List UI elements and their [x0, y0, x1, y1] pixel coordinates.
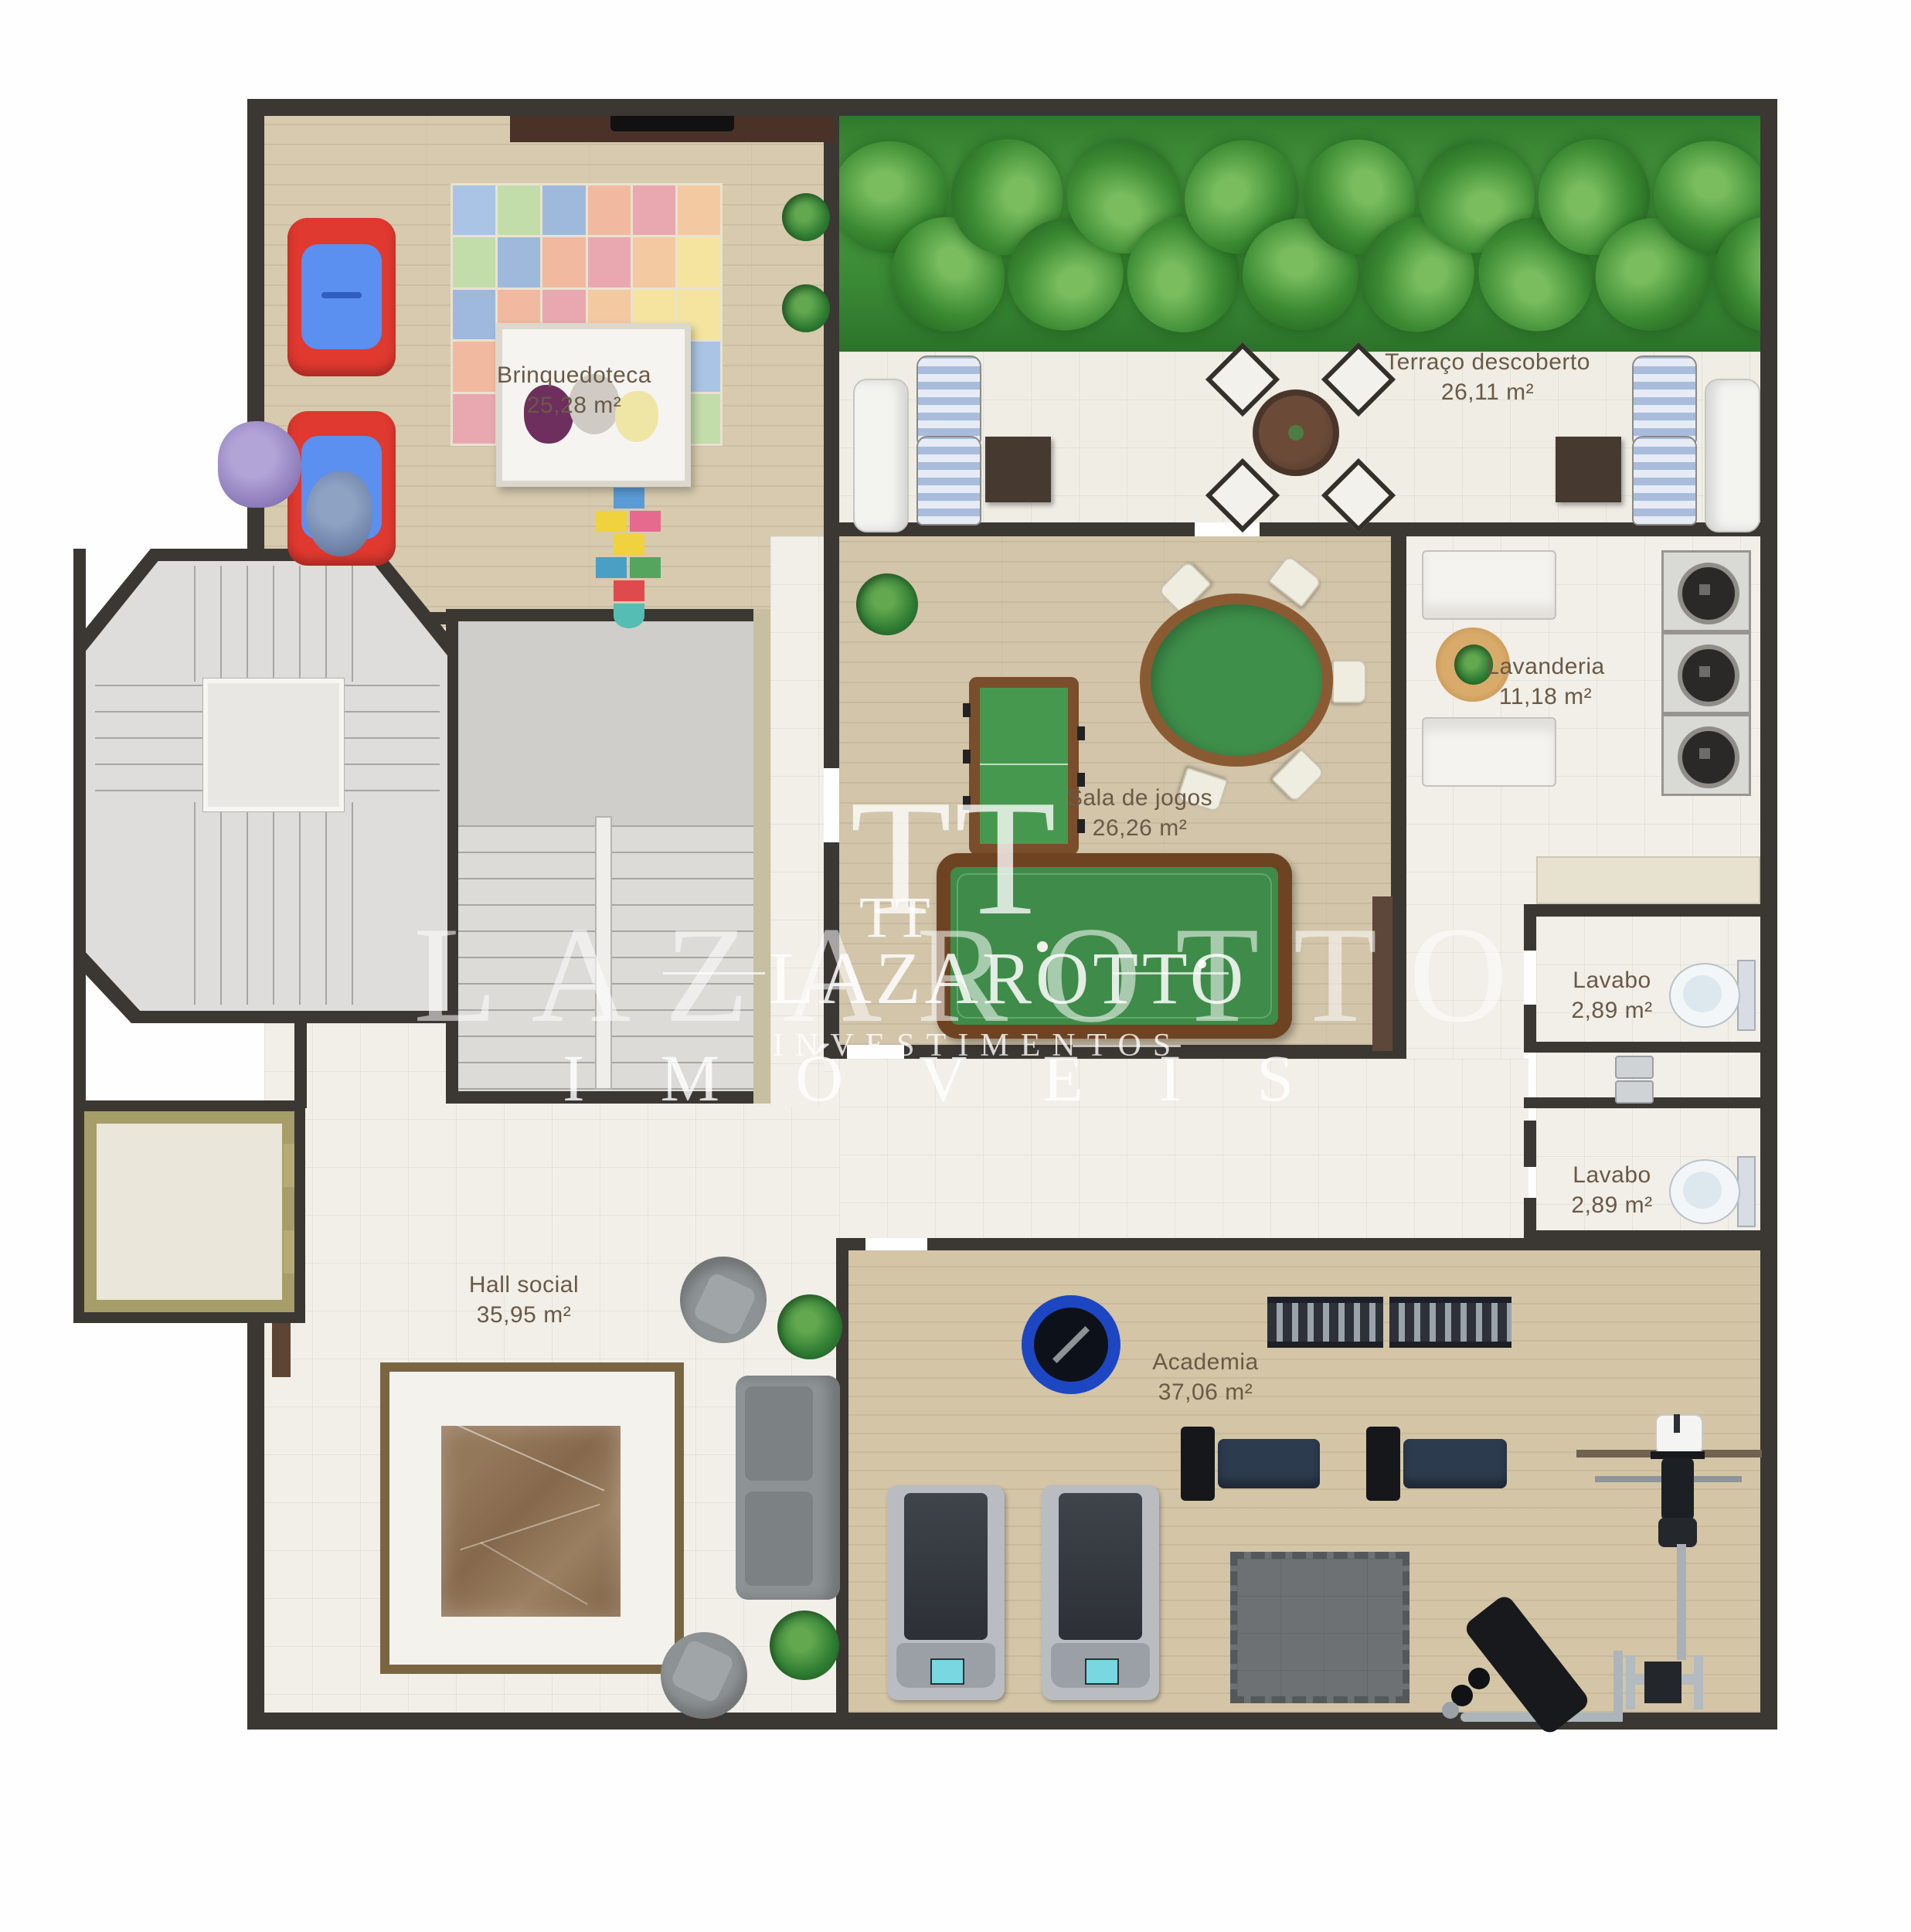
washer-drum	[1678, 726, 1739, 788]
kids-sofa-red	[287, 218, 396, 376]
room-area: 11,18 m²	[1486, 682, 1604, 712]
stairwell-octagon	[73, 549, 460, 1023]
foosball-knob	[963, 796, 971, 810]
play-mat-tile	[453, 237, 495, 287]
toilet-bowl	[1669, 1159, 1740, 1224]
room-label-lavanderia: Lavanderia 11,18 m²	[1486, 651, 1604, 712]
play-mat-tile	[453, 185, 495, 235]
sofa-cushion	[745, 1386, 813, 1481]
hopscotch-tile	[614, 604, 644, 628]
pool-table-inner-line	[957, 873, 1272, 1019]
sun-lounger	[916, 355, 981, 445]
play-mat-tile	[498, 237, 540, 287]
toilet-icon	[1669, 1153, 1756, 1227]
laundry-table	[1422, 550, 1556, 620]
machine-seatback	[1661, 1458, 1694, 1521]
sink-icon	[1615, 1056, 1654, 1079]
toilet-bowl	[1669, 963, 1740, 1028]
round-dining-table	[1253, 389, 1339, 476]
plant-icon	[782, 284, 830, 332]
elevator-door	[284, 1144, 294, 1187]
foosball-knob	[963, 703, 971, 717]
stair-landing	[203, 679, 344, 811]
hedge-plants	[839, 116, 1760, 352]
coffee-table-square	[1556, 437, 1621, 502]
wall	[824, 842, 839, 1053]
bench-foot	[1442, 1702, 1459, 1719]
wall	[847, 1238, 865, 1250]
wall	[247, 99, 1777, 116]
room-label-academia: Academia 37,06 m²	[1152, 1347, 1258, 1407]
kids-sofa-seam	[321, 292, 362, 298]
wall	[904, 1045, 1406, 1059]
room-name: Brinquedoteca	[497, 360, 651, 390]
plant-icon	[856, 573, 918, 635]
laundry-table	[1422, 717, 1556, 787]
treadmill-screen	[1085, 1658, 1119, 1685]
room-name: Lavanderia	[1486, 651, 1604, 682]
washer-drum	[1678, 645, 1739, 706]
hopscotch-tile	[596, 511, 627, 532]
room-label-brinquedoteca: Brinquedoteca 25,28 m²	[497, 360, 651, 420]
elevator-door	[284, 1230, 294, 1274]
machine-seat	[1658, 1518, 1697, 1547]
sun-lounger	[1632, 355, 1697, 445]
room-name: Hall social	[469, 1270, 579, 1300]
exercise-station-blue	[1022, 1295, 1120, 1394]
play-mat-tile	[588, 185, 631, 235]
room-area: 26,26 m²	[1067, 813, 1212, 843]
sun-lounger	[1632, 436, 1697, 526]
coffee-table-square	[985, 437, 1051, 502]
wall	[1391, 522, 1406, 1059]
wall	[927, 1238, 1760, 1250]
wall	[1260, 522, 1406, 536]
stairs	[95, 685, 203, 801]
laundry-counter	[1536, 856, 1760, 904]
hall-sofa	[736, 1376, 840, 1600]
washing-machine-icon	[1661, 632, 1751, 714]
toilet-icon	[1669, 957, 1756, 1031]
foosball-knob	[1077, 726, 1085, 740]
wall	[1524, 904, 1760, 917]
room-label-terraco: Terraço descoberto 26,11 m²	[1385, 347, 1590, 407]
armchair-cushion	[669, 1638, 735, 1704]
wall	[446, 1091, 770, 1104]
hopscotch-tile	[630, 557, 661, 578]
treadmill	[1042, 1485, 1159, 1700]
card-chair	[1332, 660, 1366, 703]
sink-icon	[1615, 1080, 1654, 1104]
stairs	[194, 566, 372, 682]
hopscotch-tile	[614, 534, 644, 555]
room-area: 37,06 m²	[1152, 1377, 1258, 1407]
play-mat-tile	[453, 290, 495, 339]
foosball-table	[969, 677, 1079, 855]
washing-machine-icon	[1661, 714, 1751, 796]
plant-icon	[777, 1294, 842, 1359]
foosball-knob	[963, 750, 971, 764]
station-glyph	[1052, 1326, 1090, 1363]
bean-bag-purple	[218, 421, 301, 508]
pool-ball	[1037, 941, 1048, 952]
wall	[1524, 1005, 1536, 1053]
play-mat-tile	[498, 185, 540, 235]
wall	[824, 1045, 847, 1059]
weight-bench	[1181, 1427, 1215, 1501]
hopscotch-tile	[614, 580, 644, 601]
elevator	[73, 1100, 305, 1323]
treadmill-belt	[904, 1493, 988, 1640]
machine-headrest-notch	[1674, 1414, 1680, 1433]
washing-machine-icon	[1661, 550, 1751, 632]
incline-bench	[1437, 1577, 1638, 1731]
floor-corridor-horizontal	[839, 1059, 1528, 1238]
bean-bag-blue	[306, 471, 372, 556]
washer-drum	[1678, 563, 1739, 624]
room-label-lavabo-2: Lavabo 2,89 m²	[1571, 1160, 1652, 1220]
treadmill-belt	[1059, 1493, 1142, 1640]
room-area: 35,95 m²	[469, 1300, 579, 1330]
machine-post	[1677, 1544, 1686, 1660]
play-mat-tile	[542, 185, 585, 235]
bench-roller	[1468, 1668, 1490, 1689]
stairwell-octagon-floor	[86, 561, 447, 1011]
plant-icon	[770, 1611, 839, 1680]
dumbbell-rack	[1389, 1297, 1511, 1348]
hopscotch-tile	[630, 511, 661, 532]
tv-icon	[610, 116, 734, 131]
weight-bench	[1403, 1439, 1507, 1488]
play-mat-tile	[453, 394, 495, 444]
wall	[1391, 522, 1760, 536]
cabinet-sala	[1372, 896, 1392, 1051]
marble-vein	[456, 1423, 605, 1491]
wall-olive	[753, 609, 770, 1104]
table-centerpiece	[1288, 425, 1304, 440]
wall	[1524, 1042, 1760, 1053]
play-mat-tile	[542, 237, 585, 287]
sofa-cushion	[745, 1492, 813, 1586]
stairwell-main	[458, 621, 753, 1091]
card-table-round	[1140, 594, 1333, 767]
bench-rail	[1613, 1651, 1623, 1722]
room-name: Terraço descoberto	[1385, 347, 1590, 377]
gym-floor-mat	[1230, 1552, 1409, 1703]
wall-pillar-brown	[272, 1323, 291, 1377]
hopscotch-tile	[596, 557, 627, 578]
play-mat-tile	[633, 185, 675, 235]
dumbbell-rack	[1267, 1297, 1383, 1348]
floor-corridor-vertical	[770, 536, 824, 1107]
marble-inlay-frame	[380, 1362, 684, 1674]
room-name: Lavabo	[1571, 1160, 1652, 1190]
room-name: Academia	[1152, 1347, 1258, 1377]
play-mat-tile	[588, 237, 631, 287]
marble-vein	[480, 1542, 588, 1605]
elevator-cab	[97, 1124, 282, 1300]
plant-icon	[782, 193, 830, 241]
wall	[1524, 1198, 1536, 1243]
armchair-cushion	[692, 1271, 758, 1337]
room-area: 2,89 m²	[1571, 1190, 1652, 1220]
pool-ball	[1198, 960, 1206, 968]
sun-lounger	[916, 436, 981, 526]
room-area: 2,89 m²	[1571, 995, 1652, 1026]
treadmill	[887, 1485, 1005, 1700]
play-mat-tile	[678, 237, 720, 287]
room-area: 25,28 m²	[497, 390, 651, 420]
wall	[824, 536, 839, 768]
terrace-sofa	[853, 379, 909, 532]
play-mat-tile	[678, 185, 720, 235]
play-mat-tile	[453, 342, 495, 391]
room-label-hall-social: Hall social 35,95 m²	[469, 1270, 579, 1330]
room-name: Sala de jogos	[1067, 783, 1212, 813]
stair-upper-landing	[458, 621, 753, 825]
terrace-sofa	[1705, 379, 1760, 532]
weight-bench	[1366, 1427, 1400, 1501]
stair-divider	[595, 816, 612, 1090]
marble-inlay-center	[441, 1426, 621, 1617]
stairs	[194, 802, 372, 1005]
machine-weight-stack	[1644, 1662, 1681, 1703]
room-name: Lavabo	[1571, 965, 1652, 995]
treadmill-screen	[930, 1658, 964, 1685]
pool-table	[937, 853, 1292, 1039]
play-mat-tile	[633, 237, 675, 287]
wall	[294, 1023, 307, 1108]
floor-plan-image: Brinquedoteca 25,28 m² Terraço descobert…	[0, 0, 1911, 1932]
wall	[1524, 1121, 1536, 1167]
wall	[1524, 904, 1536, 951]
room-label-sala-jogos: Sala de jogos 26,26 m²	[1067, 783, 1212, 843]
room-label-lavabo-1: Lavabo 2,89 m²	[1571, 965, 1652, 1026]
room-area: 26,11 m²	[1385, 377, 1590, 407]
weight-bench	[1218, 1439, 1320, 1488]
hopscotch-tile	[614, 488, 644, 509]
foosball-centerline	[980, 764, 1068, 765]
